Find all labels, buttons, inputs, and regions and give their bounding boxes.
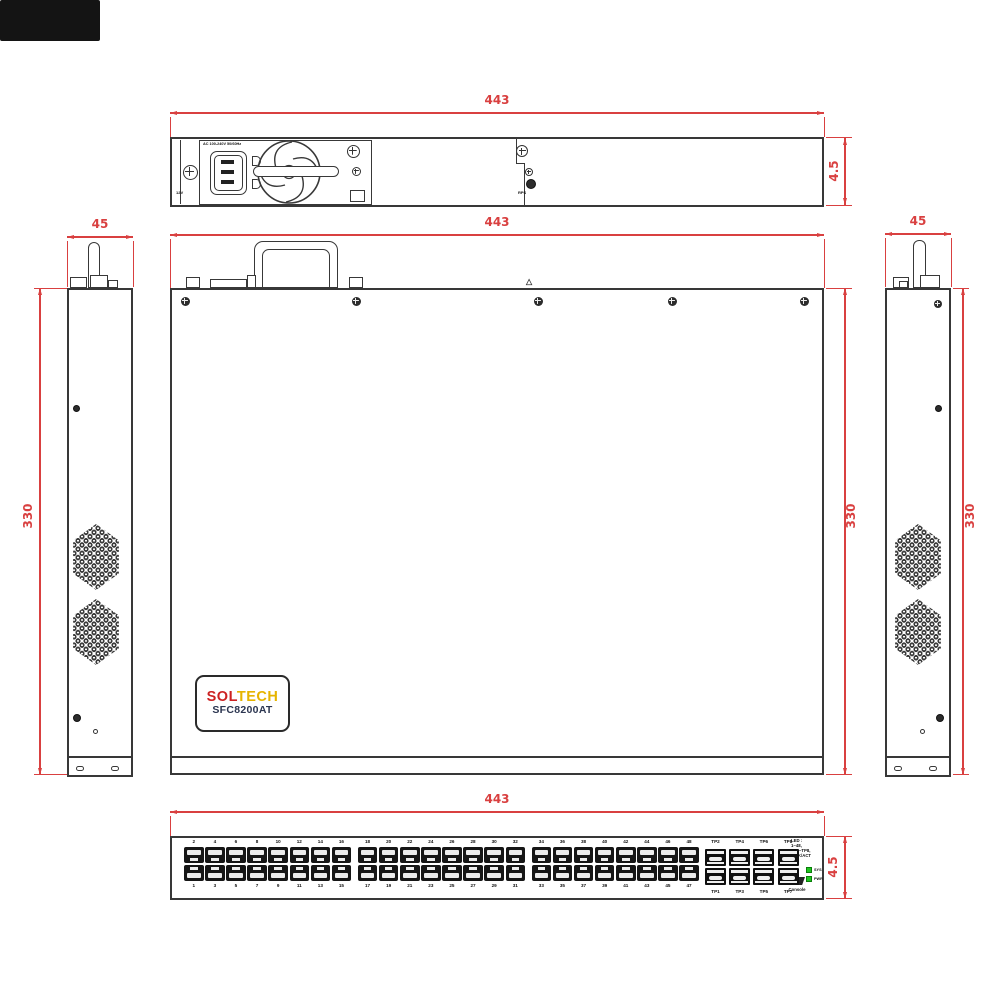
dim-ext-line [67,241,68,287]
port-number-bottom: 7 [247,883,267,888]
screw-icon [347,145,360,158]
rj45-port [358,865,378,881]
screw-icon [516,145,528,157]
slot-label: RPS [518,191,526,196]
rj45-port [268,847,288,863]
top-tab [186,277,200,288]
dim-ext-line [826,898,852,899]
handle-base [920,275,940,288]
screw-icon [936,714,944,722]
screw-icon [352,297,361,306]
rj45-port [553,865,573,881]
sfp-cage [729,849,750,866]
flange-hole [929,766,937,771]
screw-icon [525,168,533,176]
port-number-bottom: 33 [532,883,552,888]
port-number-bottom: 19 [379,883,399,888]
port-number-top: 6 [226,839,246,844]
rj45-port [379,865,399,881]
inlet-slot [221,160,234,164]
dimension-label-front_height: 4.5 [826,856,840,877]
dimension-line [962,288,963,775]
rj45-port [290,865,310,881]
screw-icon [935,405,942,412]
dim-ext-line [826,774,852,775]
rj45-port [332,847,352,863]
port-number-bottom: 21 [400,883,420,888]
rj45-port [184,847,204,863]
pwr-led-label: PWR [814,877,823,882]
top-tab [210,279,247,288]
port-number-bottom: 31 [506,883,526,888]
port-number-top: 48 [679,839,699,844]
dim-ext-line [826,288,852,289]
flange-hole [76,766,84,771]
handle-base [899,281,908,288]
dim-arrow-left [170,810,177,814]
rj45-port [379,847,399,863]
rj45-port [311,865,331,881]
sfp-label-bottom: TP3 [728,889,752,894]
port-number-top: 18 [358,839,378,844]
dim-arrow-up [843,836,847,843]
dimension-label-right_side_depth: 330 [963,503,977,528]
rj45-port [358,847,378,863]
brand-sol: SOL [207,689,237,705]
sfp-label-top: TP6 [752,839,776,844]
dim-arrow-up [961,288,965,295]
rj45-port [205,865,225,881]
port-number-top: 42 [616,839,636,844]
dim-arrow-right [817,810,824,814]
dim-arrow-down [843,768,847,775]
dim-ext-line [885,238,886,287]
top-tab [247,275,256,288]
screw-icon [352,167,361,176]
rj45-port [595,865,615,881]
dim-arrow-down [961,768,965,775]
sfp-label-bottom: TP5 [752,889,776,894]
port-number-bottom: 43 [637,883,657,888]
port-number-top: 22 [400,839,420,844]
dim-ext-line [826,836,852,837]
dimension-label-left_side_depth: 330 [21,503,35,528]
port-number-bottom: 23 [421,883,441,888]
port-number-top: 34 [532,839,552,844]
sfp-label-top: TP2 [704,839,728,844]
dimension-label-rear_width: 443 [484,93,509,107]
dim-arrow-left [885,232,892,236]
brand-logo: SOLTECH SFC8200AT [195,675,290,732]
port-number-top: 28 [463,839,483,844]
dim-ext-line [824,239,825,288]
brand-tech: TECH [237,689,278,705]
dim-arrow-left [170,233,177,237]
screw-icon [73,714,81,722]
port-number-bottom: 41 [616,883,636,888]
port-number-bottom: 9 [268,883,288,888]
sfp-label-bottom: TP7 [776,889,800,894]
sys-led [806,867,812,873]
sfp-cage [705,849,726,866]
rj45-port [247,865,267,881]
dim-ext-line [951,238,952,287]
dimension-label-top_width: 443 [484,215,509,229]
screw-icon [668,297,677,306]
port-number-bottom: 5 [226,883,246,888]
handle-base [90,275,108,288]
psu-handle-bar [253,166,339,177]
sfp-cage [705,868,726,885]
dimension-line [170,112,824,113]
sys-led-label: SYS [814,868,822,873]
top-handle-inner [262,249,330,288]
dim-arrow-right [944,232,951,236]
dim-ext-line [826,205,852,206]
front-bezel-line [171,756,823,758]
port-number-top: 36 [553,839,573,844]
latch-plate [350,190,365,202]
dim-arrow-right [817,233,824,237]
rj45-port [463,847,483,863]
port-number-bottom: 13 [311,883,331,888]
flange-line [68,756,132,758]
port-number-top: 4 [205,839,225,844]
flange-hole [894,766,902,771]
rj45-port [553,847,573,863]
dim-ext-line [826,137,852,138]
port-number-top: 2 [184,839,204,844]
rj45-port [679,847,699,863]
rj45-port [400,847,420,863]
port-number-bottom: 47 [679,883,699,888]
sfp-cage [729,868,750,885]
rj45-port [637,865,657,881]
screw-icon [93,729,98,734]
flange-hole [111,766,119,771]
rj45-port [421,847,441,863]
dim-ext-line [824,117,825,137]
dimension-line [170,234,824,235]
screw-icon [181,297,190,306]
rj45-port [400,865,420,881]
dimension-label-right_side_width: 45 [910,214,927,228]
rj45-port [574,847,594,863]
top-bump: △ [526,277,532,287]
dim-ext-line [133,241,134,287]
model-number: SFC8200AT [212,704,272,717]
drawing-canvas: AC 100-240V 50/60Hz RPS 12V △ SOLTECH [0,0,1000,1000]
rj45-port [616,865,636,881]
dimension-label-front_width: 443 [484,792,509,806]
dim-arrow-down [843,198,847,205]
port-number-bottom: 45 [658,883,678,888]
dimension-line [844,138,845,205]
port-number-top: 12 [290,839,310,844]
port-number-bottom: 37 [574,883,594,888]
rj45-port [463,865,483,881]
corner-label: 12V [176,191,183,196]
port-number-bottom: 27 [463,883,483,888]
sfp-label-top: TP4 [728,839,752,844]
rj45-port [290,847,310,863]
dimension-line [844,836,845,899]
handle-base [70,277,87,288]
port-number-bottom: 29 [484,883,504,888]
port-number-bottom: 17 [358,883,378,888]
rj45-port [311,847,331,863]
sfp-block [0,0,100,41]
port-number-top: 44 [637,839,657,844]
brand-name: SOLTECH [207,690,279,705]
rj45-port [532,847,552,863]
dimension-line [67,236,133,237]
screw-icon [920,729,925,734]
dim-arrow-right [126,235,133,239]
port-number-bottom: 3 [205,883,225,888]
port-number-top: 38 [574,839,594,844]
sfp-cage [753,849,774,866]
port-number-top: 40 [595,839,615,844]
rj45-port [532,865,552,881]
rj45-port [268,865,288,881]
rj45-port [658,847,678,863]
rj45-port [506,847,526,863]
sfp-cage [753,868,774,885]
screw-icon [800,297,809,306]
sfp-cage [778,849,799,866]
handle-base [108,280,118,288]
dim-ext-line [824,816,825,836]
rj45-port [247,847,267,863]
port-number-bottom: 11 [290,883,310,888]
port-number-bottom: 15 [332,883,352,888]
dim-arrow-down [38,768,42,775]
rj45-port [574,865,594,881]
screw-icon [534,297,543,306]
port-number-bottom: 39 [595,883,615,888]
screw-icon [526,179,536,189]
rj45-port [506,865,526,881]
dim-ext-line [170,816,171,836]
port-number-top: 8 [247,839,267,844]
dim-arrow-left [67,235,74,239]
rj45-port [679,865,699,881]
dim-arrow-up [843,288,847,295]
dimension-line [844,288,845,775]
rj45-port [595,847,615,863]
pwr-led [806,876,812,882]
sfp-label-top: TP8 [776,839,800,844]
rj45-port [421,865,441,881]
dim-arrow-down [843,892,847,899]
rj45-port [226,847,246,863]
port-number-top: 16 [332,839,352,844]
sfp-cage [778,868,799,885]
inlet-slot [221,170,234,174]
dim-ext-line [170,239,171,288]
rj45-port [184,865,204,881]
inlet-slot [221,180,234,184]
screw-icon [934,300,942,308]
port-number-bottom: 35 [553,883,573,888]
port-number-top: 14 [311,839,331,844]
dim-arrow-left [170,111,177,115]
rj45-port [658,865,678,881]
dimension-line [39,288,40,775]
dimension-label-left_side_width: 45 [92,217,109,231]
dim-arrow-up [843,138,847,145]
port-number-top: 46 [658,839,678,844]
port-number-bottom: 1 [184,883,204,888]
screw-icon [73,405,80,412]
port-number-top: 20 [379,839,399,844]
sfp-label-bottom: TP1 [704,889,728,894]
dim-arrow-up [38,288,42,295]
screw-icon [183,165,198,180]
port-number-bottom: 25 [442,883,462,888]
dimension-line [170,811,824,812]
dimension-label-top_depth: 330 [844,503,858,528]
rj45-port [637,847,657,863]
rj45-port [616,847,636,863]
dimension-line [885,233,951,234]
dimension-label-rear_height: 4.5 [827,160,841,181]
top-tab [349,277,363,288]
rj45-port [332,865,352,881]
rj45-port [484,847,504,863]
port-number-top: 26 [442,839,462,844]
rj45-port [205,847,225,863]
rj45-port [226,865,246,881]
flange-line [886,756,950,758]
port-number-top: 30 [484,839,504,844]
port-number-top: 32 [506,839,526,844]
rj45-port [442,865,462,881]
dim-ext-line [170,117,171,137]
rj45-port [484,865,504,881]
rj45-port [442,847,462,863]
dim-arrow-right [817,111,824,115]
port-number-top: 24 [421,839,441,844]
port-number-top: 10 [268,839,288,844]
